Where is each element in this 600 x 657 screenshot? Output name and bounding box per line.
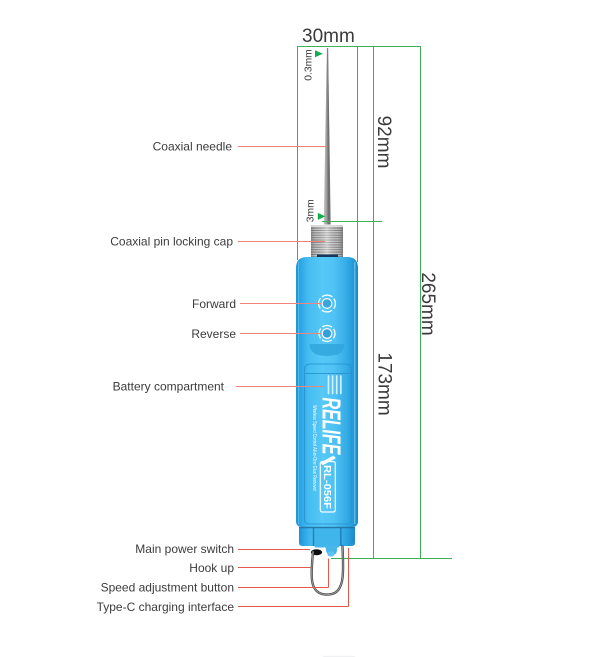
svg-text:Wireless Speed Control All-in-: Wireless Speed Control All-in-One Glue R… xyxy=(311,405,317,491)
svg-text:RELIFE: RELIFE xyxy=(317,398,347,455)
svg-text:Forward: Forward xyxy=(192,297,236,311)
svg-text:92mm: 92mm xyxy=(373,116,394,169)
svg-text:Coaxial pin locking cap: Coaxial pin locking cap xyxy=(110,235,233,249)
svg-text:Hook up: Hook up xyxy=(189,561,234,575)
svg-text:Type-C charging interface: Type-C charging interface xyxy=(97,600,235,614)
svg-text:Reverse: Reverse xyxy=(191,327,236,341)
svg-text:173mm: 173mm xyxy=(374,352,395,415)
svg-text:3mm: 3mm xyxy=(306,199,317,222)
svg-text:265mm: 265mm xyxy=(417,272,438,335)
svg-text:Battery compartment: Battery compartment xyxy=(113,380,225,394)
svg-text:Speed adjustment button: Speed adjustment button xyxy=(101,581,234,595)
svg-text:30mm: 30mm xyxy=(302,26,355,47)
svg-text:Main power switch: Main power switch xyxy=(135,542,234,556)
svg-text:0.3mm: 0.3mm xyxy=(304,49,315,80)
svg-text:RL-056F: RL-056F xyxy=(321,465,333,510)
svg-text:Coaxial needle: Coaxial needle xyxy=(153,140,233,154)
